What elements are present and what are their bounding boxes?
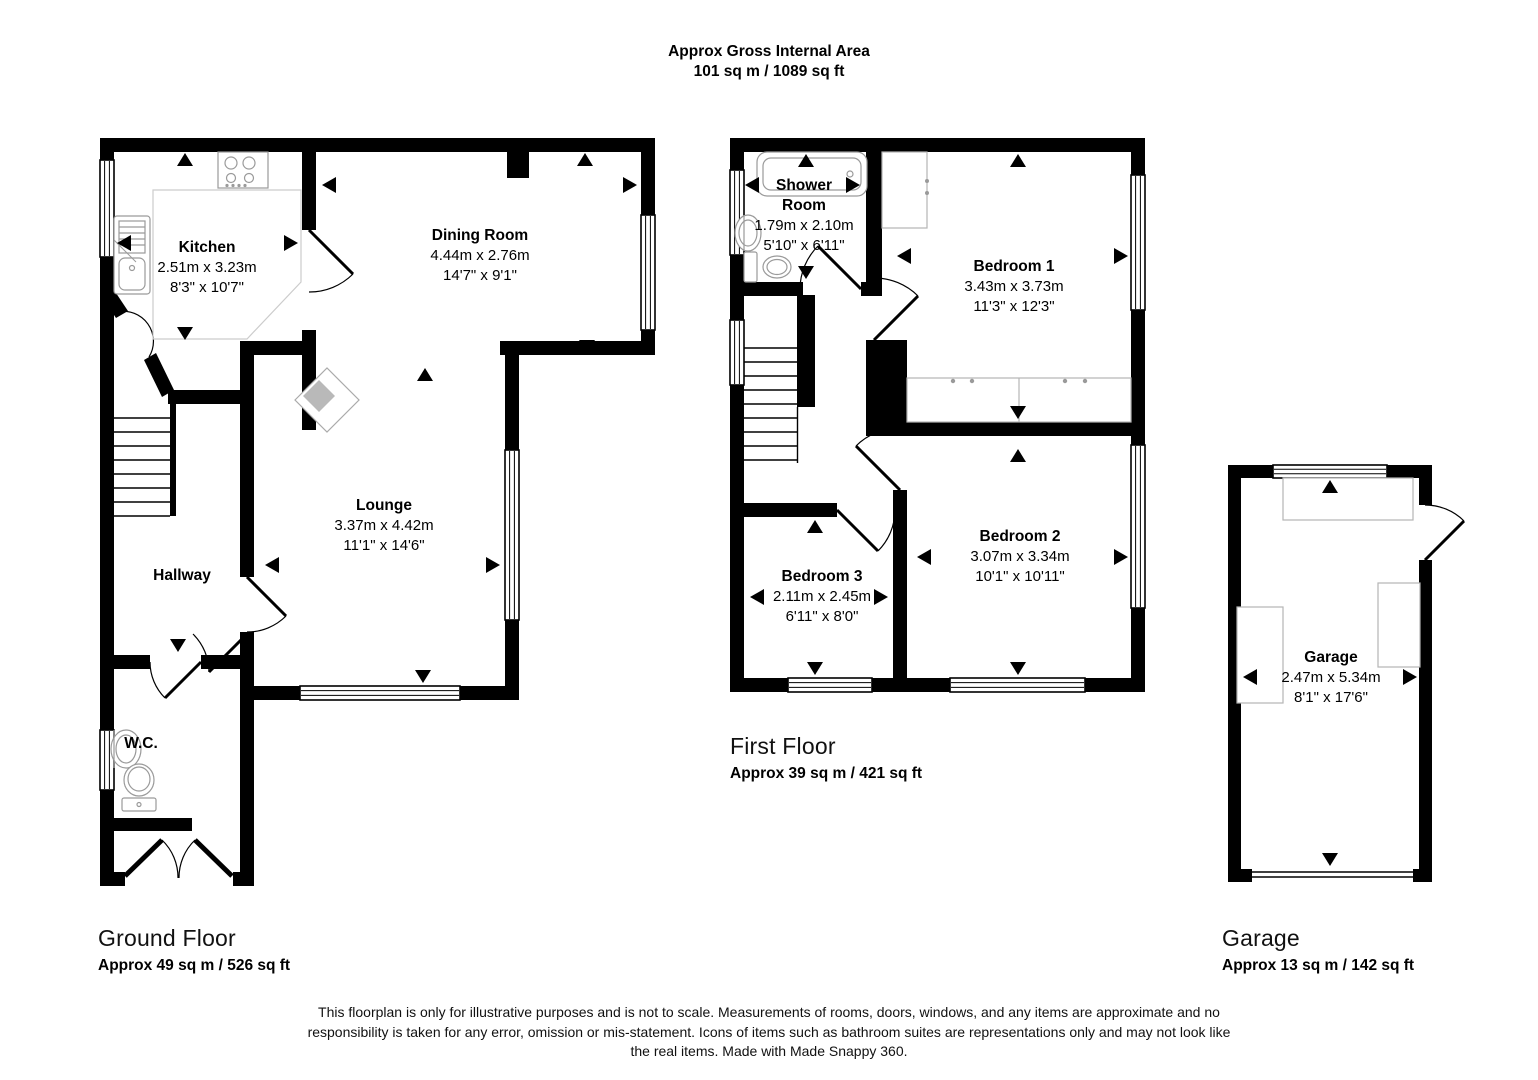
garage-window [1273, 465, 1387, 478]
room-size-metric: 4.44m x 2.76m [430, 246, 529, 266]
room-label-dining-room: Dining Room 4.44m x 2.76m 14'7" x 9'1" [430, 226, 529, 286]
room-size-metric: 2.51m x 3.23m [157, 258, 256, 278]
page-title: Approx Gross Internal Area 101 sq m / 10… [668, 42, 870, 82]
first-floor-area: Approx 39 sq m / 421 sq ft [730, 765, 922, 783]
room-name: Hallway [153, 566, 211, 586]
room-name: Shower [754, 176, 853, 196]
room-label-hallway: Hallway [153, 566, 211, 586]
room-label-bedroom1: Bedroom 1 3.43m x 3.73m 11'3" x 12'3" [964, 257, 1063, 317]
room-label-wc: W.C. [124, 734, 158, 754]
room-size-imperial: 8'1" x 17'6" [1281, 688, 1380, 708]
first-stairs [744, 348, 798, 463]
ground-dimension-arrows [117, 153, 637, 683]
ground-stairs [114, 418, 170, 516]
room-size-metric: 3.43m x 3.73m [964, 277, 1063, 297]
room-size-imperial: 8'3" x 10'7" [157, 278, 256, 298]
title-line1: Approx Gross Internal Area [668, 42, 870, 62]
room-label-kitchen: Kitchen 2.51m x 3.23m 8'3" x 10'7" [157, 238, 256, 298]
room-label-bedroom2: Bedroom 2 3.07m x 3.34m 10'1" x 10'11" [970, 527, 1069, 587]
room-size-imperial: 11'3" x 12'3" [964, 297, 1063, 317]
room-name: Lounge [334, 496, 433, 516]
room-size-imperial: 6'11" x 8'0" [773, 607, 871, 627]
room-name: Dining Room [430, 226, 529, 246]
cupboard-icon [882, 152, 927, 228]
floorplan-drawing [0, 0, 1538, 1080]
ground-floor-caption: Ground Floor [98, 925, 236, 952]
room-size-metric: 3.07m x 3.34m [970, 547, 1069, 567]
room-size-imperial: 10'1" x 10'11" [970, 567, 1069, 587]
room-label-lounge: Lounge 3.37m x 4.42m 11'1" x 14'6" [334, 496, 433, 556]
disclaimer-text: This floorplan is only for illustrative … [302, 1003, 1237, 1062]
room-label-shower-room: Shower Room 1.79m x 2.10m 5'10" x 6'11" [754, 176, 853, 256]
room-name: Kitchen [157, 238, 256, 258]
room-name: Bedroom 2 [970, 527, 1069, 547]
wc-toilet-icon [122, 764, 156, 811]
room-size-metric: 1.79m x 2.10m [754, 216, 853, 236]
garage-caption: Garage [1222, 925, 1300, 952]
title-line2: 101 sq m / 1089 sq ft [668, 62, 870, 82]
room-name: Bedroom 3 [773, 567, 871, 587]
room-size-imperial: 14'7" x 9'1" [430, 266, 529, 286]
room-label-garage: Garage 2.47m x 5.34m 8'1" x 17'6" [1281, 648, 1380, 708]
room-size-metric: 2.11m x 2.45m [773, 587, 871, 607]
room-name: Bedroom 1 [964, 257, 1063, 277]
room-size-metric: 3.37m x 4.42m [334, 516, 433, 536]
room-name: Room [754, 196, 853, 216]
first-floor-caption: First Floor [730, 733, 836, 760]
room-size-metric: 2.47m x 5.34m [1281, 668, 1380, 688]
room-label-bedroom3: Bedroom 3 2.11m x 2.45m 6'11" x 8'0" [773, 567, 871, 627]
room-size-imperial: 11'1" x 14'6" [334, 536, 433, 556]
kitchen-sink-icon [114, 216, 150, 294]
shower-toilet-icon [744, 252, 791, 282]
floorplan-page: Approx Gross Internal Area 101 sq m / 10… [0, 0, 1538, 1080]
room-size-imperial: 5'10" x 6'11" [754, 236, 853, 256]
room-name: Garage [1281, 648, 1380, 668]
hob-icon [218, 152, 268, 188]
room-name: W.C. [124, 734, 158, 754]
garage-area: Approx 13 sq m / 142 sq ft [1222, 957, 1414, 975]
ground-floor-area: Approx 49 sq m / 526 sq ft [98, 957, 290, 975]
